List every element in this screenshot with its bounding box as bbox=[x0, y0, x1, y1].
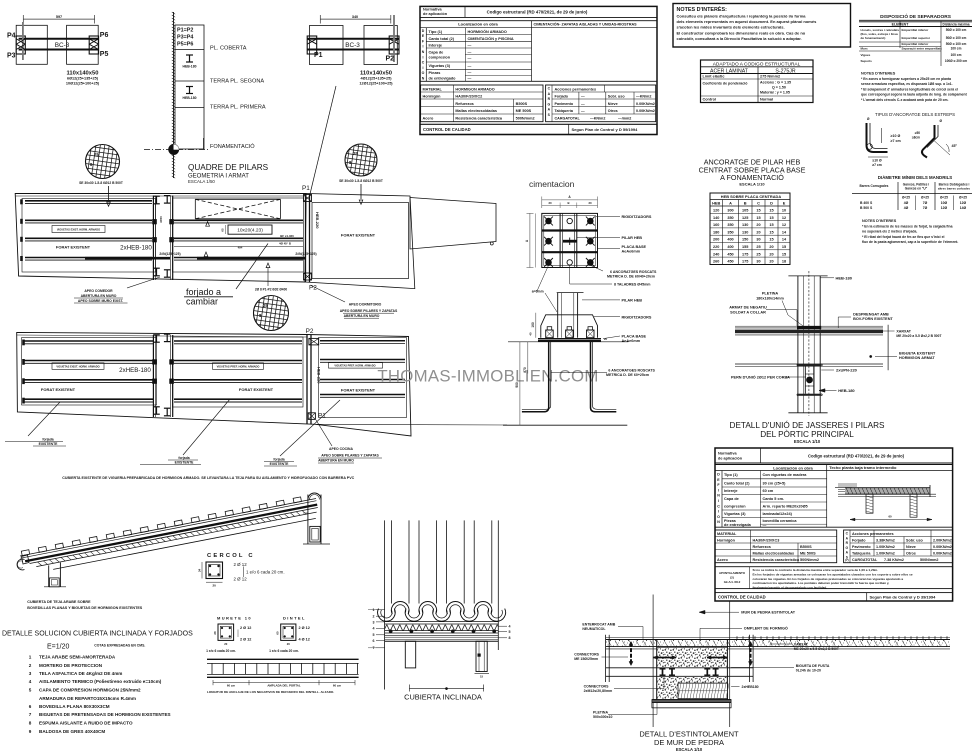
svg-text:1.00KN/m2: 1.00KN/m2 bbox=[876, 552, 895, 556]
svg-text:VIGUETAS EXIST. HORM. ARMADO: VIGUETAS EXIST. HORM. ARMADO bbox=[57, 227, 100, 231]
svg-text:Tabiquería: Tabiquería bbox=[852, 552, 871, 556]
svg-text:sense armadura específica, es: sense armadura específica, es disposarà … bbox=[861, 82, 953, 86]
svg-text:12Ø: 12Ø bbox=[960, 201, 967, 205]
svg-text:20: 20 bbox=[213, 584, 217, 588]
svg-text:18: 18 bbox=[782, 260, 786, 264]
svg-text:CUBIERTA DE TEJA ARABE SOBRE: CUBIERTA DE TEJA ARABE SOBRE bbox=[27, 600, 91, 604]
svg-text:CARGATOTAL: CARGATOTAL bbox=[555, 117, 581, 121]
svg-text:Material : γ = 1.05: Material : γ = 1.05 bbox=[760, 91, 790, 95]
svg-text:I: I bbox=[718, 510, 719, 514]
svg-text:0.00KN/m2: 0.00KN/m2 bbox=[636, 109, 655, 113]
svg-text:40: 40 bbox=[529, 332, 533, 336]
svg-text:5: 5 bbox=[373, 633, 375, 637]
svg-text:10Ø: 10Ø bbox=[941, 201, 948, 205]
svg-text:175: 175 bbox=[742, 252, 748, 256]
svg-text:0.00KN/m2: 0.00KN/m2 bbox=[933, 552, 952, 556]
svg-text:870: 870 bbox=[523, 367, 527, 373]
svg-text:100 cm: 100 cm bbox=[951, 47, 962, 51]
svg-text:DETALL D'UNIÓ DE JASSERES I PI: DETALL D'UNIÓ DE JASSERES I PILARS bbox=[730, 420, 885, 430]
svg-text:≥7 cm: ≥7 cm bbox=[891, 139, 901, 143]
svg-text:1 e/o 6 cada 20 cm.: 1 e/o 6 cada 20 cm. bbox=[206, 649, 236, 653]
svg-text:NOTES D'INTERÈS:: NOTES D'INTERÈS: bbox=[677, 5, 728, 13]
svg-text:4: 4 bbox=[509, 625, 511, 629]
svg-text:ESPUMA AISLANTE A RUIDO DE IMP: ESPUMA AISLANTE A RUIDO DE IMPACTO bbox=[39, 721, 133, 726]
svg-text:ME 20x20 a 5-5 Øx2,2 B 500T: ME 20x20 a 5-5 Øx2,2 B 500T bbox=[896, 334, 941, 338]
svg-text:25: 25 bbox=[353, 151, 358, 156]
svg-text:ME 500S: ME 500S bbox=[516, 109, 532, 113]
svg-text:HEB-220: HEB-220 bbox=[317, 367, 322, 384]
svg-text:I: I bbox=[423, 45, 424, 49]
svg-text:15: 15 bbox=[769, 230, 773, 234]
svg-text:7: 7 bbox=[373, 646, 375, 650]
svg-text:0L24h de 10-20: 0L24h de 10-20 bbox=[796, 668, 821, 672]
svg-text:≥10 Ø: ≥10 Ø bbox=[891, 134, 901, 138]
svg-text:HA30/F/20/XC2: HA30/F/20/XC2 bbox=[455, 95, 482, 99]
svg-text:—: — bbox=[763, 523, 767, 527]
svg-text:—: — bbox=[468, 50, 472, 54]
svg-text:TEJA ARABE SEMI-AMORTERADA: TEJA ARABE SEMI-AMORTERADA bbox=[39, 655, 116, 660]
svg-text:30: 30 bbox=[756, 260, 760, 264]
svg-text:HEB-180: HEB-180 bbox=[838, 388, 855, 393]
svg-text:TERRA PL. PRIMERA: TERRA PL. PRIMERA bbox=[210, 105, 266, 111]
svg-text:7Ø: 7Ø bbox=[923, 206, 928, 210]
svg-text:≥8cm: ≥8cm bbox=[912, 136, 920, 140]
svg-text:175: 175 bbox=[742, 260, 748, 264]
svg-text:Ø>25: Ø>25 bbox=[959, 196, 967, 200]
svg-text:VIGUETAS PREF. HORM. ARMADO: VIGUETAS PREF. HORM. ARMADO bbox=[217, 364, 260, 368]
svg-text:Vigues: Vigues bbox=[861, 53, 871, 57]
svg-text:180x180x14mm: 180x180x14mm bbox=[756, 296, 784, 300]
svg-text:B: B bbox=[567, 201, 569, 205]
svg-text:Ø>25: Ø>25 bbox=[921, 196, 929, 200]
svg-text:ARMAT DE NEGATIU: ARMAT DE NEGATIU bbox=[729, 306, 767, 310]
svg-text:Consulteu els plànols d'arquit: Consulteu els plànols d'arquitectura i r… bbox=[677, 14, 807, 19]
svg-text:AISLAMIENTO TERMICO (Poliestir: AISLAMIENTO TERMICO (Poliestireno extrui… bbox=[39, 679, 162, 684]
svg-text:CERCOL C: CERCOL C bbox=[207, 553, 255, 559]
svg-text:1: 1 bbox=[29, 655, 32, 660]
svg-text:2 Ø 12: 2 Ø 12 bbox=[240, 638, 251, 642]
svg-text:—: — bbox=[468, 64, 472, 68]
svg-text:130: 130 bbox=[742, 230, 748, 234]
svg-text:Nieve: Nieve bbox=[608, 102, 618, 106]
svg-text:≥50: ≥50 bbox=[915, 131, 921, 135]
svg-text:Barres Corrugades: Barres Corrugades bbox=[860, 184, 889, 188]
svg-text:ARMADURA DE REPARTO15X15cms R.: ARMADURA DE REPARTO15X15cms R.4mm bbox=[39, 696, 136, 701]
svg-text:ESCALA 1/50: ESCALA 1/50 bbox=[188, 179, 215, 184]
svg-text:494: 494 bbox=[238, 245, 243, 249]
svg-text:El constructor comprobarà les: El constructor comprobarà les dimensions… bbox=[677, 30, 806, 35]
svg-text:Intereje: Intereje bbox=[724, 489, 738, 493]
svg-text:B 500 S: B 500 S bbox=[860, 206, 873, 210]
svg-text:Resistencia característica: Resistencia característica bbox=[753, 558, 801, 562]
svg-text:Acciones permanentes: Acciones permanentes bbox=[852, 532, 894, 536]
svg-text:DEL PÒRTIC PRINCIPAL: DEL PÒRTIC PRINCIPAL bbox=[760, 429, 854, 439]
svg-text:2xHEB-180: 2xHEB-180 bbox=[120, 245, 152, 252]
svg-text:PLETINA: PLETINA bbox=[593, 710, 608, 714]
svg-text:Tipo (1): Tipo (1) bbox=[429, 30, 443, 34]
svg-text:C: C bbox=[717, 504, 720, 508]
svg-text:Hormigón: Hormigón bbox=[717, 539, 736, 543]
svg-text:200: 200 bbox=[713, 238, 719, 242]
svg-text:N: N bbox=[717, 520, 720, 524]
svg-text:Murs: Murs bbox=[861, 47, 868, 51]
svg-text:CONNECTORS: CONNECTORS bbox=[574, 652, 599, 656]
svg-text:AeAe6mm: AeAe6mm bbox=[622, 250, 641, 254]
svg-text:bovedilla ceramica: bovedilla ceramica bbox=[763, 519, 798, 523]
svg-text:I: I bbox=[423, 66, 424, 70]
svg-text:Suports: Suports bbox=[861, 59, 873, 63]
svg-text:METRICA D. DE 60+25cm: METRICA D. DE 60+25cm bbox=[606, 373, 649, 377]
svg-text:HEB SOBRE PLACA CENTRADA: HEB SOBRE PLACA CENTRADA bbox=[721, 194, 782, 199]
svg-text:10x20(4.23): 10x20(4.23) bbox=[237, 228, 263, 234]
svg-text:COTAS EXPRESADAS EN CMS.: COTAS EXPRESADAS EN CMS. bbox=[94, 644, 145, 648]
svg-text:—: — bbox=[468, 71, 472, 75]
svg-text:DESPRENGAT AMB: DESPRENGAT AMB bbox=[853, 313, 889, 317]
svg-text:I: I bbox=[423, 55, 424, 59]
svg-text:B 400 S: B 400 S bbox=[860, 201, 873, 205]
svg-text:0.00KN/m2: 0.00KN/m2 bbox=[636, 102, 655, 106]
svg-text:APEO SOBRE MURO EXIST.: APEO SOBRE MURO EXIST. bbox=[78, 299, 124, 303]
svg-text:4Ø 45° B: 4Ø 45° B bbox=[279, 241, 291, 245]
svg-text:1 e/o 6 cada 20 cm.: 1 e/o 6 cada 20 cm. bbox=[246, 570, 285, 575]
svg-text:Techo planta baja tramo interm: Techo planta baja tramo intermedio bbox=[829, 465, 897, 470]
svg-text:cimentacion: cimentacion bbox=[529, 179, 575, 189]
svg-text:25: 25 bbox=[756, 245, 760, 249]
svg-text:* El ribat del forjat haurà de: * El ribat del forjat haurà de fer-se fi… bbox=[862, 235, 944, 239]
svg-text:60: 60 bbox=[276, 631, 280, 635]
svg-text:Tipo (1): Tipo (1) bbox=[724, 473, 738, 477]
svg-text:34: 34 bbox=[198, 569, 202, 573]
svg-text:HEB-220: HEB-220 bbox=[315, 212, 320, 229]
svg-text:Emparrillat superior: Emparrillat superior bbox=[902, 36, 931, 40]
svg-text:compresion: compresion bbox=[724, 504, 746, 508]
svg-text:Arm. reparto ME20x20Ø5: Arm. reparto ME20x20Ø5 bbox=[763, 504, 808, 508]
svg-text:forjada: forjada bbox=[178, 456, 189, 460]
svg-text:20: 20 bbox=[769, 245, 773, 249]
svg-text:Q = 1.50: Q = 1.50 bbox=[772, 86, 786, 90]
svg-text:Capa de: Capa de bbox=[429, 51, 444, 55]
svg-text:15: 15 bbox=[769, 223, 773, 227]
svg-text:Emparrillat inferior: Emparrillat inferior bbox=[902, 42, 930, 46]
svg-text:HORMIGON ARMAT: HORMIGON ARMAT bbox=[899, 356, 935, 360]
svg-text:110x140x50: 110x140x50 bbox=[67, 71, 99, 77]
svg-text:a=6mm: a=6mm bbox=[532, 289, 544, 293]
svg-text:FORAT EXISTENT: FORAT EXISTENT bbox=[341, 388, 376, 393]
svg-text:DINTEL: DINTEL bbox=[283, 616, 306, 621]
svg-text:forjada: forjada bbox=[273, 458, 284, 462]
svg-text:6: 6 bbox=[373, 639, 375, 643]
svg-text:BOVEDILLA PLANA 80X30X3CM: BOVEDILLA PLANA 80X30X3CM bbox=[39, 704, 110, 709]
svg-text:PLACA BASE: PLACA BASE bbox=[622, 245, 647, 249]
svg-text:HA30/F/20/XC3: HA30/F/20/XC3 bbox=[753, 539, 780, 543]
svg-text:laminada/12x24): laminada/12x24) bbox=[763, 512, 793, 516]
svg-text:Viguetas (3): Viguetas (3) bbox=[429, 64, 451, 68]
svg-text:150: 150 bbox=[742, 238, 748, 242]
svg-text:P6: P6 bbox=[100, 32, 109, 39]
svg-text:125: 125 bbox=[742, 216, 748, 220]
svg-text:105: 105 bbox=[742, 209, 748, 213]
svg-text:DIÀMETRE MÍNIM DELS MANDRILS: DIÀMETRE MÍNIM DELS MANDRILS bbox=[878, 175, 952, 180]
svg-text:2xHEB-180: 2xHEB-180 bbox=[119, 367, 151, 374]
svg-text:220: 220 bbox=[713, 245, 719, 249]
svg-text:5: 5 bbox=[29, 688, 32, 693]
svg-text:400: 400 bbox=[727, 238, 733, 242]
svg-text:ENTERROCAT AMB: ENTERROCAT AMB bbox=[582, 622, 615, 626]
svg-text:CONNECTORS: CONNECTORS bbox=[584, 685, 609, 689]
svg-text:60: 60 bbox=[888, 515, 892, 519]
svg-text:P1: P1 bbox=[302, 185, 310, 192]
svg-text:15: 15 bbox=[480, 675, 484, 679]
svg-text:RIGIDITZADORS: RIGIDITZADORS bbox=[622, 215, 652, 219]
svg-text:dels elements representats en: dels elements representats en aquest doc… bbox=[677, 19, 818, 24]
svg-text:ESCALA 1/10: ESCALA 1/10 bbox=[794, 439, 821, 444]
svg-text:SE 30x30 1-5-8 6Ø12 B 500T: SE 30x30 1-5-8 6Ø12 B 500T bbox=[79, 181, 123, 185]
svg-text:ME 15Ø/25mm: ME 15Ø/25mm bbox=[574, 657, 598, 661]
svg-text:—: — bbox=[581, 109, 585, 113]
svg-text:450: 450 bbox=[727, 260, 733, 264]
svg-text:XARXAT: XARXAT bbox=[794, 642, 809, 646]
svg-text:PERN D'UNIÓ 2Ø12 PER CORBA: PERN D'UNIÓ 2Ø12 PER CORBA bbox=[731, 374, 790, 379]
svg-text:2xUPN-220: 2xUPN-220 bbox=[836, 368, 858, 373]
svg-text:EXISTENTE: EXISTENTE bbox=[39, 442, 59, 446]
svg-text:45°: 45° bbox=[952, 144, 958, 148]
svg-text:FORAT EXISTENT: FORAT EXISTENT bbox=[341, 233, 376, 238]
svg-text:4 Ø 12: 4 Ø 12 bbox=[299, 638, 310, 642]
svg-text:Viguetas (3): Viguetas (3) bbox=[724, 512, 746, 516]
svg-text:2xM12s/20,80mm: 2xM12s/20,80mm bbox=[584, 689, 613, 693]
svg-text:no superarà els 2 metres d'alç: no superarà els 2 metres d'alçada. bbox=[862, 230, 917, 234]
svg-text:Hormigón: Hormigón bbox=[423, 95, 442, 99]
svg-text:25: 25 bbox=[756, 252, 760, 256]
svg-text:PILAR HEB: PILAR HEB bbox=[622, 236, 643, 240]
svg-text:s'acoten les mides invariants: s'acoten les mides invariants dels eleme… bbox=[677, 25, 785, 30]
svg-text:CARGATOTAL: CARGATOTAL bbox=[852, 558, 878, 562]
svg-text:BC-3: BC-3 bbox=[55, 42, 70, 49]
svg-text:15: 15 bbox=[756, 209, 760, 213]
svg-text:BOV-FORN EXISTENT: BOV-FORN EXISTENT bbox=[853, 317, 893, 321]
svg-text:—: — bbox=[581, 95, 585, 99]
svg-text:coincidir, consultarà a la Dir: coincidir, consultarà a la Direcció Facu… bbox=[677, 36, 802, 41]
svg-text:P3=P4: P3=P4 bbox=[177, 35, 193, 41]
svg-text:0.00KN/m2: 0.00KN/m2 bbox=[933, 545, 952, 549]
svg-text:350: 350 bbox=[727, 223, 733, 227]
svg-text:8: 8 bbox=[29, 721, 32, 726]
svg-text:2Ø 8 P1-P2 6Ø2 Ø400: 2Ø 8 P1-P2 6Ø2 Ø400 bbox=[255, 288, 287, 292]
svg-text:65: 65 bbox=[221, 228, 225, 232]
svg-text:Normal: Normal bbox=[760, 98, 773, 102]
svg-text:Sobr. uso: Sobr. uso bbox=[608, 95, 626, 99]
svg-text:10Ø12(25+100+25): 10Ø12(25+100+25) bbox=[66, 81, 100, 85]
svg-text:QUADRE DE PILARS: QUADRE DE PILARS bbox=[188, 163, 269, 172]
svg-text:PL. COBERTA: PL. COBERTA bbox=[210, 46, 247, 52]
svg-text:ELEMENT: ELEMENT bbox=[892, 22, 910, 26]
svg-text:15: 15 bbox=[769, 216, 773, 220]
svg-text:160: 160 bbox=[713, 223, 719, 227]
svg-text:D: D bbox=[770, 201, 773, 206]
svg-text:VIGUETAS EXIST. HORM. ARMADO: VIGUETAS EXIST. HORM. ARMADO bbox=[56, 364, 99, 368]
svg-text:ACER LAMINAT: ACER LAMINAT bbox=[710, 68, 749, 74]
svg-text:6: 6 bbox=[29, 704, 32, 709]
svg-text:Acero: Acero bbox=[423, 117, 434, 121]
svg-text:2 Ø 12: 2 Ø 12 bbox=[240, 626, 251, 630]
svg-text:20: 20 bbox=[756, 230, 760, 234]
svg-text:ABERTURA EN MURO: ABERTURA EN MURO bbox=[81, 294, 117, 298]
svg-text:2: 2 bbox=[373, 615, 375, 619]
svg-text:P2: P2 bbox=[306, 328, 314, 335]
svg-text:Mallas electrosoldadas: Mallas electrosoldadas bbox=[455, 109, 497, 113]
svg-text:ABERTURA EN MURO: ABERTURA EN MURO bbox=[318, 459, 354, 463]
svg-text:Límit elàstic: Límit elàstic bbox=[703, 75, 725, 79]
svg-text:50Ø o 100 cm: 50Ø o 100 cm bbox=[946, 36, 967, 40]
svg-text:1 e/o 6 cada 20 cm.: 1 e/o 6 cada 20 cm. bbox=[269, 649, 299, 653]
svg-text:500N/mm2: 500N/mm2 bbox=[920, 558, 938, 562]
svg-text:20: 20 bbox=[756, 223, 760, 227]
svg-text:Acero: Acero bbox=[717, 558, 728, 562]
svg-text:de aplicación: de aplicación bbox=[423, 12, 448, 16]
svg-text:4Ø: 4Ø bbox=[904, 201, 909, 205]
svg-text:2 Ø 12: 2 Ø 12 bbox=[234, 577, 248, 582]
svg-text:* El solapament d' armadures l: * El solapament d' armadures longitudina… bbox=[861, 87, 958, 91]
svg-text:Forjado: Forjado bbox=[852, 539, 866, 543]
svg-text:de fonamentació): de fonamentació) bbox=[861, 36, 886, 40]
svg-text:BC-3: BC-3 bbox=[345, 42, 360, 49]
svg-text:6 ANCORATGES ROSCATS: 6 ANCORATGES ROSCATS bbox=[608, 368, 655, 372]
svg-text:500N/mm2: 500N/mm2 bbox=[800, 558, 819, 562]
svg-text:—: — bbox=[468, 77, 472, 81]
svg-text:HEB-180: HEB-180 bbox=[836, 276, 853, 281]
svg-text:AeAe6mm: AeAe6mm bbox=[622, 339, 641, 343]
svg-text:OMPLERT DE FORMIGÓ: OMPLERT DE FORMIGÓ bbox=[744, 626, 788, 631]
svg-text:Piezas: Piezas bbox=[429, 71, 441, 75]
svg-text:MATERIAL: MATERIAL bbox=[717, 532, 737, 536]
svg-text:BIGUETA DE FUSTA: BIGUETA DE FUSTA bbox=[796, 664, 830, 668]
svg-text:A: A bbox=[729, 201, 732, 206]
svg-text:Separació entre emparrillats: Separació entre emparrillats bbox=[902, 47, 943, 51]
svg-text:450: 450 bbox=[727, 252, 733, 256]
svg-text:Refuerzos: Refuerzos bbox=[753, 545, 771, 549]
svg-text:400: 400 bbox=[727, 245, 733, 249]
svg-text:EXISTENTE: EXISTENTE bbox=[270, 462, 290, 466]
svg-text:Ganxos en "U": Ganxos en "U" bbox=[905, 187, 928, 191]
svg-text:(7): (7) bbox=[845, 558, 849, 562]
svg-text:340: 340 bbox=[352, 15, 358, 19]
svg-text:MORTERO DE PROTECCION: MORTERO DE PROTECCION bbox=[39, 663, 103, 668]
svg-text:B: B bbox=[744, 201, 747, 206]
svg-text:TIPUS D'ANCORATGE DELS ESTREPS: TIPUS D'ANCORATGE DELS ESTREPS bbox=[875, 112, 955, 117]
svg-text:30: 30 bbox=[756, 238, 760, 242]
svg-text:3: 3 bbox=[29, 671, 32, 676]
svg-text:120: 120 bbox=[713, 209, 719, 213]
svg-text:7Ø: 7Ø bbox=[923, 201, 928, 205]
svg-text:FORAT EXISTENT: FORAT EXISTENT bbox=[56, 245, 91, 250]
svg-text:CAPA DE COMPRESION HORMIGON 25: CAPA DE COMPRESION HORMIGON 25N/mm2 bbox=[39, 688, 141, 693]
svg-text:Acciones permanentes: Acciones permanentes bbox=[555, 88, 597, 92]
svg-text:EXISTENTE: EXISTENTE bbox=[175, 461, 195, 465]
svg-text:—: — bbox=[468, 43, 472, 47]
svg-text:I: I bbox=[718, 488, 719, 492]
svg-text:LONGITUD DE ANCLAJE DE LOS NE: LONGITUD DE ANCLAJE DE LOS NEGATIVOS DE … bbox=[207, 690, 334, 694]
svg-text:O: O bbox=[717, 515, 720, 519]
svg-text:—: — bbox=[468, 56, 472, 60]
svg-text:HEB-180: HEB-180 bbox=[183, 65, 197, 69]
svg-text:500x300x10: 500x300x10 bbox=[593, 715, 613, 719]
svg-text:VIGUETAS PREF. HORM. ARMADO: VIGUETAS PREF. HORM. ARMADO bbox=[334, 365, 375, 368]
svg-text:900: 900 bbox=[515, 382, 519, 388]
svg-text:I: I bbox=[718, 499, 719, 503]
svg-text:APEO SOBRE PILARES Y ZAPATAS: APEO SOBRE PILARES Y ZAPATAS bbox=[321, 454, 379, 458]
svg-text:APEO COCINA: APEO COCINA bbox=[329, 447, 353, 451]
svg-text:Gk Art. 68.2: Gk Art. 68.2 bbox=[724, 580, 741, 584]
svg-text:60 cm: 60 cm bbox=[227, 684, 236, 688]
svg-text:275 N/mm2: 275 N/mm2 bbox=[760, 75, 780, 79]
svg-text:Sobr. uso: Sobr. uso bbox=[906, 539, 924, 543]
svg-text:20: 20 bbox=[548, 201, 552, 205]
svg-text:Capa de: Capa de bbox=[724, 497, 739, 501]
svg-text:de aplicación: de aplicación bbox=[718, 457, 743, 461]
svg-text:4Ø12(25+135+25): 4Ø12(25+135+25) bbox=[360, 77, 392, 81]
svg-text:60 cm: 60 cm bbox=[763, 489, 774, 493]
svg-text:Normativa: Normativa bbox=[718, 452, 737, 456]
svg-text:7.38 KN/m2: 7.38 KN/m2 bbox=[884, 558, 904, 562]
svg-text:2#N(125+125): 2#N(125+125) bbox=[159, 252, 180, 256]
svg-text:FONAMENTACIÓ: FONAMENTACIÓ bbox=[210, 143, 255, 150]
svg-text:9: 9 bbox=[29, 729, 32, 734]
svg-text:30 cm (25+5): 30 cm (25+5) bbox=[763, 481, 787, 485]
svg-text:28: 28 bbox=[213, 631, 217, 635]
svg-text:Segun Plan de Control y D 59/1: Segun Plan de Control y D 59/1994 bbox=[572, 127, 639, 132]
svg-text:BALDOSA DE GRES 40X40CM: BALDOSA DE GRES 40X40CM bbox=[39, 729, 105, 734]
svg-text:100 cm: 100 cm bbox=[951, 53, 962, 57]
svg-text:14Ø: 14Ø bbox=[960, 206, 967, 210]
svg-text:Ø<25: Ø<25 bbox=[902, 196, 910, 200]
svg-text:P1=P2: P1=P2 bbox=[177, 28, 193, 34]
svg-text:METRICA D. DE 60/40+20cm: METRICA D. DE 60/40+20cm bbox=[607, 274, 655, 278]
svg-text:altres barres corbades: altres barres corbades bbox=[938, 187, 971, 191]
svg-text:15: 15 bbox=[782, 252, 786, 256]
svg-text:CONTROL DE CALIDAD: CONTROL DE CALIDAD bbox=[423, 127, 471, 132]
svg-text:4: 4 bbox=[373, 627, 375, 631]
svg-text:Canto 5 cm.: Canto 5 cm. bbox=[763, 497, 785, 501]
svg-text:15: 15 bbox=[769, 238, 773, 242]
svg-text:Segun Plan de Control y D 39/1: Segun Plan de Control y D 39/1994 bbox=[870, 595, 937, 600]
svg-text:(2): (2) bbox=[730, 576, 734, 580]
svg-text:cambiar: cambiar bbox=[186, 297, 218, 307]
svg-text:* En la estimació de les masse: * En la estimació de les masses de forja… bbox=[862, 225, 953, 229]
svg-text:CUBIERTA EXISTENTE DE VIGUERIA: CUBIERTA EXISTENTE DE VIGUERIA PREFABRIC… bbox=[62, 476, 354, 480]
svg-text:BF x1.460: BF x1.460 bbox=[280, 234, 294, 238]
svg-text:1.00KN/m2: 1.00KN/m2 bbox=[876, 545, 895, 549]
svg-text:BIGUETA EXISTENT: BIGUETA EXISTENT bbox=[899, 352, 936, 356]
svg-text:DE MUR DE PEDRA: DE MUR DE PEDRA bbox=[654, 738, 724, 747]
svg-text:155: 155 bbox=[742, 245, 748, 249]
svg-text:50Ø o 100 cm: 50Ø o 100 cm bbox=[946, 42, 967, 46]
svg-text:500N/mm2: 500N/mm2 bbox=[516, 117, 535, 121]
svg-text:—KN/m2: —KN/m2 bbox=[590, 117, 605, 121]
svg-text:ABERTURA EN MURO: ABERTURA EN MURO bbox=[344, 314, 380, 318]
svg-text:finalmente/permitir el desapun: finalmente/permitir el desapuntalado con… bbox=[753, 585, 828, 589]
svg-text:20: 20 bbox=[769, 252, 773, 256]
svg-text:Refuerzos: Refuerzos bbox=[455, 102, 473, 106]
svg-text:HORMIGÓN ARMADO: HORMIGÓN ARMADO bbox=[468, 29, 507, 34]
svg-text:CIMENTACIÓN y PISCINA: CIMENTACIÓN y PISCINA bbox=[468, 36, 514, 41]
svg-text:N: N bbox=[717, 494, 720, 498]
svg-text:MUR DE PEDRA ESTINTOLAT: MUR DE PEDRA ESTINTOLAT bbox=[741, 611, 795, 615]
svg-text:50Ø o 100 cm: 50Ø o 100 cm bbox=[946, 28, 967, 32]
svg-text:12: 12 bbox=[782, 216, 786, 220]
svg-text:P5=P6: P5=P6 bbox=[177, 42, 193, 48]
svg-text:Intereje: Intereje bbox=[429, 43, 443, 47]
svg-text:20: 20 bbox=[588, 201, 592, 205]
